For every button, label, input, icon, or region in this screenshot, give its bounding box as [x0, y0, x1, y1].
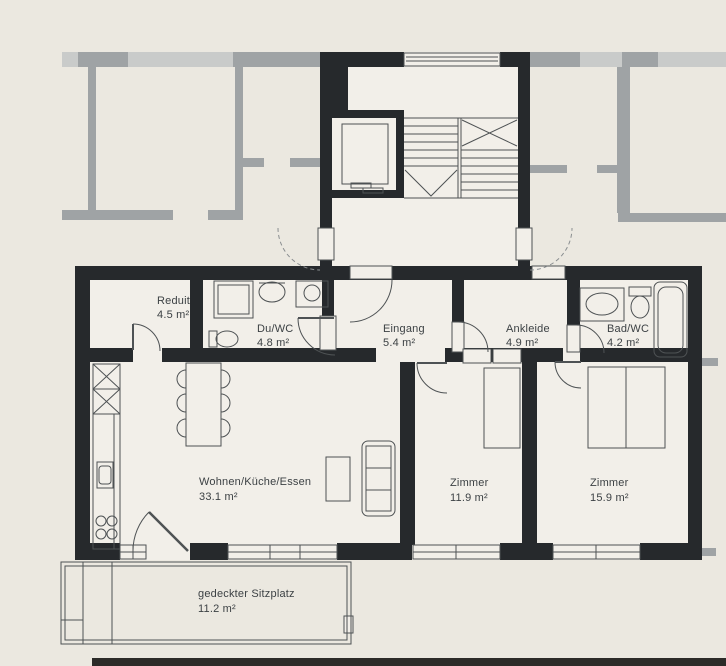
- wall-segment: [78, 52, 128, 67]
- wall-segment: [580, 348, 688, 362]
- room-area-sitzplatz: 11.2 m²: [198, 603, 236, 615]
- ankleide-door-leaf: [452, 322, 464, 352]
- wall-segment: [320, 67, 348, 117]
- wall-segment: [518, 67, 530, 228]
- terrace-post: [344, 616, 353, 633]
- wall-segment: [337, 543, 412, 560]
- room-area-duwc: 4.8 m²: [257, 337, 290, 349]
- elevator-shaft-wall: [332, 190, 404, 198]
- wall-segment: [233, 52, 320, 67]
- elevator-shaft-wall: [332, 110, 404, 118]
- wall-segment: [700, 548, 716, 556]
- wall-segment: [530, 165, 567, 173]
- room-area-reduit: 4.5 m²: [157, 309, 190, 321]
- wall-segment: [567, 280, 580, 325]
- room-label-zimmer1: Zimmer: [450, 477, 489, 489]
- room-label-badwc: Bad/WC: [607, 323, 649, 335]
- floor-plan: Reduit 4.5 m² Du/WC 4.8 m² Eingang 5.4 m…: [0, 0, 726, 666]
- wall-segment: [500, 52, 530, 67]
- elevator-shaft-wall: [396, 110, 404, 198]
- room-area-eingang: 5.4 m²: [383, 337, 416, 349]
- room-area-badwc: 4.2 m²: [607, 337, 640, 349]
- room-area-zimmer1: 11.9 m²: [450, 492, 488, 504]
- wall-segment: [522, 348, 537, 545]
- wall-segment: [622, 52, 658, 67]
- wall-segment: [243, 158, 264, 167]
- wall-segment: [235, 66, 243, 213]
- room-label-sitzplatz: gedeckter Sitzplatz: [198, 588, 295, 600]
- entry-door-leaf: [350, 266, 392, 279]
- wall-segment: [90, 348, 133, 362]
- wall-segment: [688, 266, 702, 560]
- duwc-door-opening: [320, 316, 336, 350]
- builtin-closet: [463, 349, 491, 363]
- wall-segment: [500, 543, 553, 560]
- landing-door-opening: [516, 228, 532, 260]
- room-label-reduit: Reduit: [157, 295, 190, 307]
- wall-segment: [400, 362, 415, 545]
- room-area-wohnen: 33.1 m²: [199, 491, 238, 503]
- room-label-ankleide: Ankleide: [506, 323, 550, 335]
- wall-segment: [700, 358, 718, 366]
- wall-segment: [640, 543, 702, 560]
- room-label-duwc: Du/WC: [257, 323, 293, 335]
- wall-segment: [290, 158, 320, 167]
- room-area-ankleide: 4.9 m²: [506, 337, 539, 349]
- badwc-door-opening: [567, 325, 580, 352]
- wall-segment: [618, 213, 726, 222]
- wall-segment: [190, 543, 228, 560]
- wall-segment: [617, 67, 630, 213]
- room-label-eingang: Eingang: [383, 323, 425, 335]
- room-label-zimmer2: Zimmer: [590, 477, 629, 489]
- wall-segment: [320, 117, 332, 228]
- stairwell-window: [404, 53, 500, 66]
- wall-segment: [597, 165, 617, 173]
- wall-segment: [75, 266, 90, 560]
- room-area-zimmer2: 15.9 m²: [590, 492, 629, 504]
- wall-segment: [62, 210, 173, 220]
- wall-segment: [320, 52, 404, 67]
- wall-segment: [75, 543, 120, 560]
- scan-edge-artifact: [92, 658, 726, 666]
- wall-segment: [190, 280, 203, 350]
- wall-segment: [208, 210, 243, 220]
- wall-segment: [530, 52, 580, 67]
- neighbor-door-leaf: [532, 266, 565, 279]
- room-label-wohnen: Wohnen/Küche/Essen: [199, 476, 311, 488]
- builtin-closet: [493, 349, 521, 363]
- wall-segment: [452, 280, 464, 322]
- wall-segment: [88, 66, 96, 213]
- landing-door-opening: [318, 228, 334, 260]
- wall-segment: [162, 348, 376, 362]
